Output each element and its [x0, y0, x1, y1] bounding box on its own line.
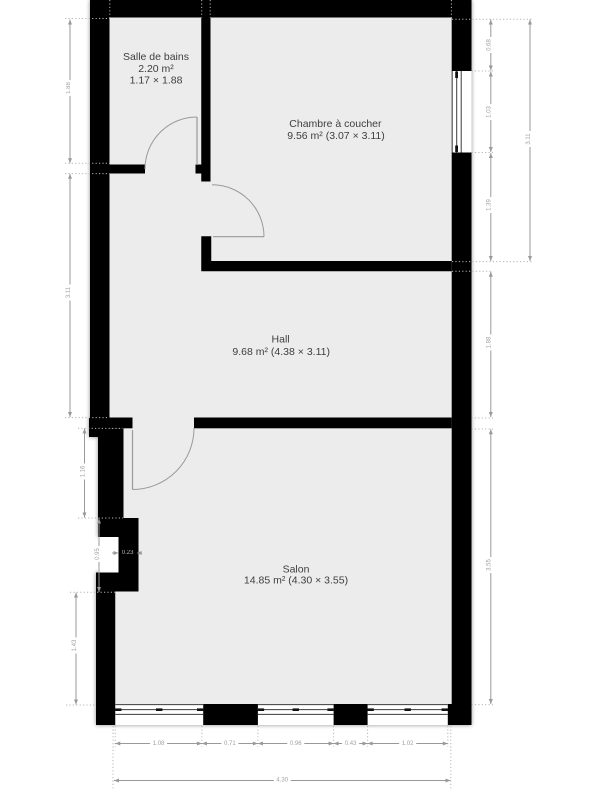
- svg-text:Salle de bains: Salle de bains: [123, 51, 189, 63]
- svg-text:1.43: 1.43: [72, 639, 78, 651]
- svg-text:1.16: 1.16: [80, 465, 86, 477]
- svg-text:1.17 × 1.88: 1.17 × 1.88: [130, 74, 183, 86]
- svg-text:3.11: 3.11: [526, 133, 532, 145]
- svg-text:1.03: 1.03: [487, 106, 493, 118]
- svg-text:0.95: 0.95: [95, 548, 101, 560]
- svg-text:0.68: 0.68: [487, 39, 493, 51]
- svg-text:2.20 m²: 2.20 m²: [138, 63, 174, 75]
- svg-text:1.02: 1.02: [402, 741, 414, 747]
- svg-text:1.88: 1.88: [66, 82, 72, 94]
- svg-text:Chambre à coucher: Chambre à coucher: [289, 118, 382, 130]
- svg-text:0.23: 0.23: [122, 550, 134, 556]
- svg-text:0.71: 0.71: [224, 741, 236, 747]
- svg-text:0.96: 0.96: [290, 741, 302, 747]
- svg-text:3.11: 3.11: [66, 286, 72, 298]
- svg-text:1.08: 1.08: [153, 741, 165, 747]
- svg-text:14.85 m² (4.30 × 3.55): 14.85 m² (4.30 × 3.55): [244, 574, 348, 586]
- svg-text:Hall: Hall: [272, 334, 290, 346]
- svg-text:1.88: 1.88: [487, 336, 493, 348]
- svg-text:1.39: 1.39: [487, 199, 493, 211]
- svg-text:9.56 m² (3.07 × 3.11): 9.56 m² (3.07 × 3.11): [287, 130, 385, 142]
- svg-text:4.30: 4.30: [276, 778, 288, 784]
- svg-text:9.68 m² (4.38 × 3.11): 9.68 m² (4.38 × 3.11): [232, 346, 330, 358]
- svg-text:0.43: 0.43: [345, 741, 357, 747]
- svg-text:3.55: 3.55: [487, 559, 493, 571]
